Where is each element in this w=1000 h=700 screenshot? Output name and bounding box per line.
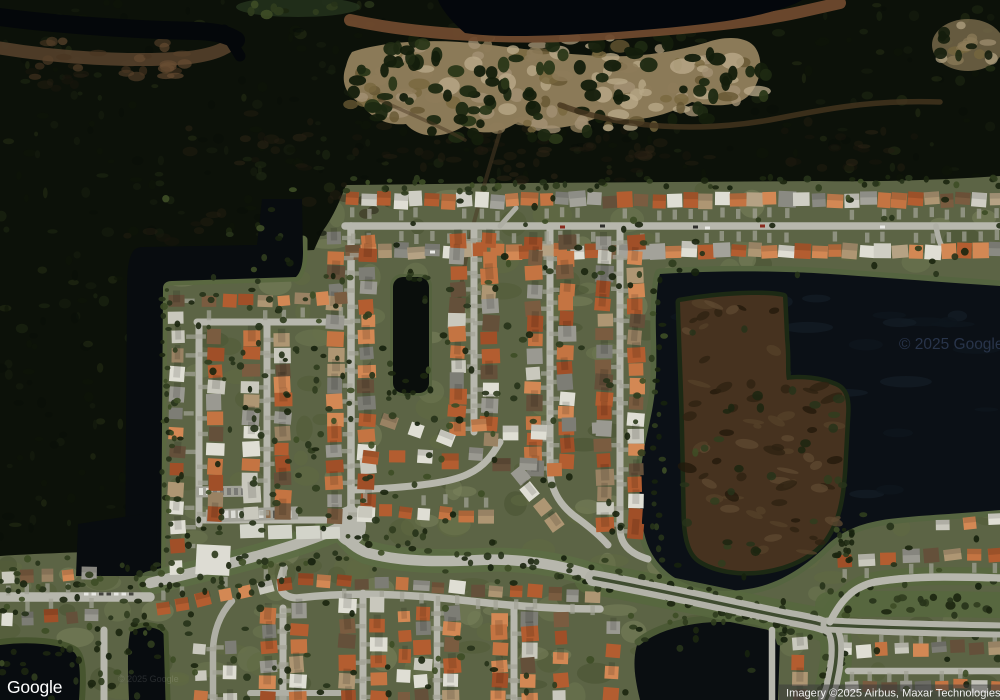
svg-text:© 2025 Google: © 2025 Google [899,336,1000,353]
svg-text:Imagery ©2025 Airbus, Maxar Te: Imagery ©2025 Airbus, Maxar Technologies [786,688,1000,700]
svg-text:Google: Google [7,677,62,697]
svg-text:© 2025 Google: © 2025 Google [118,674,179,684]
